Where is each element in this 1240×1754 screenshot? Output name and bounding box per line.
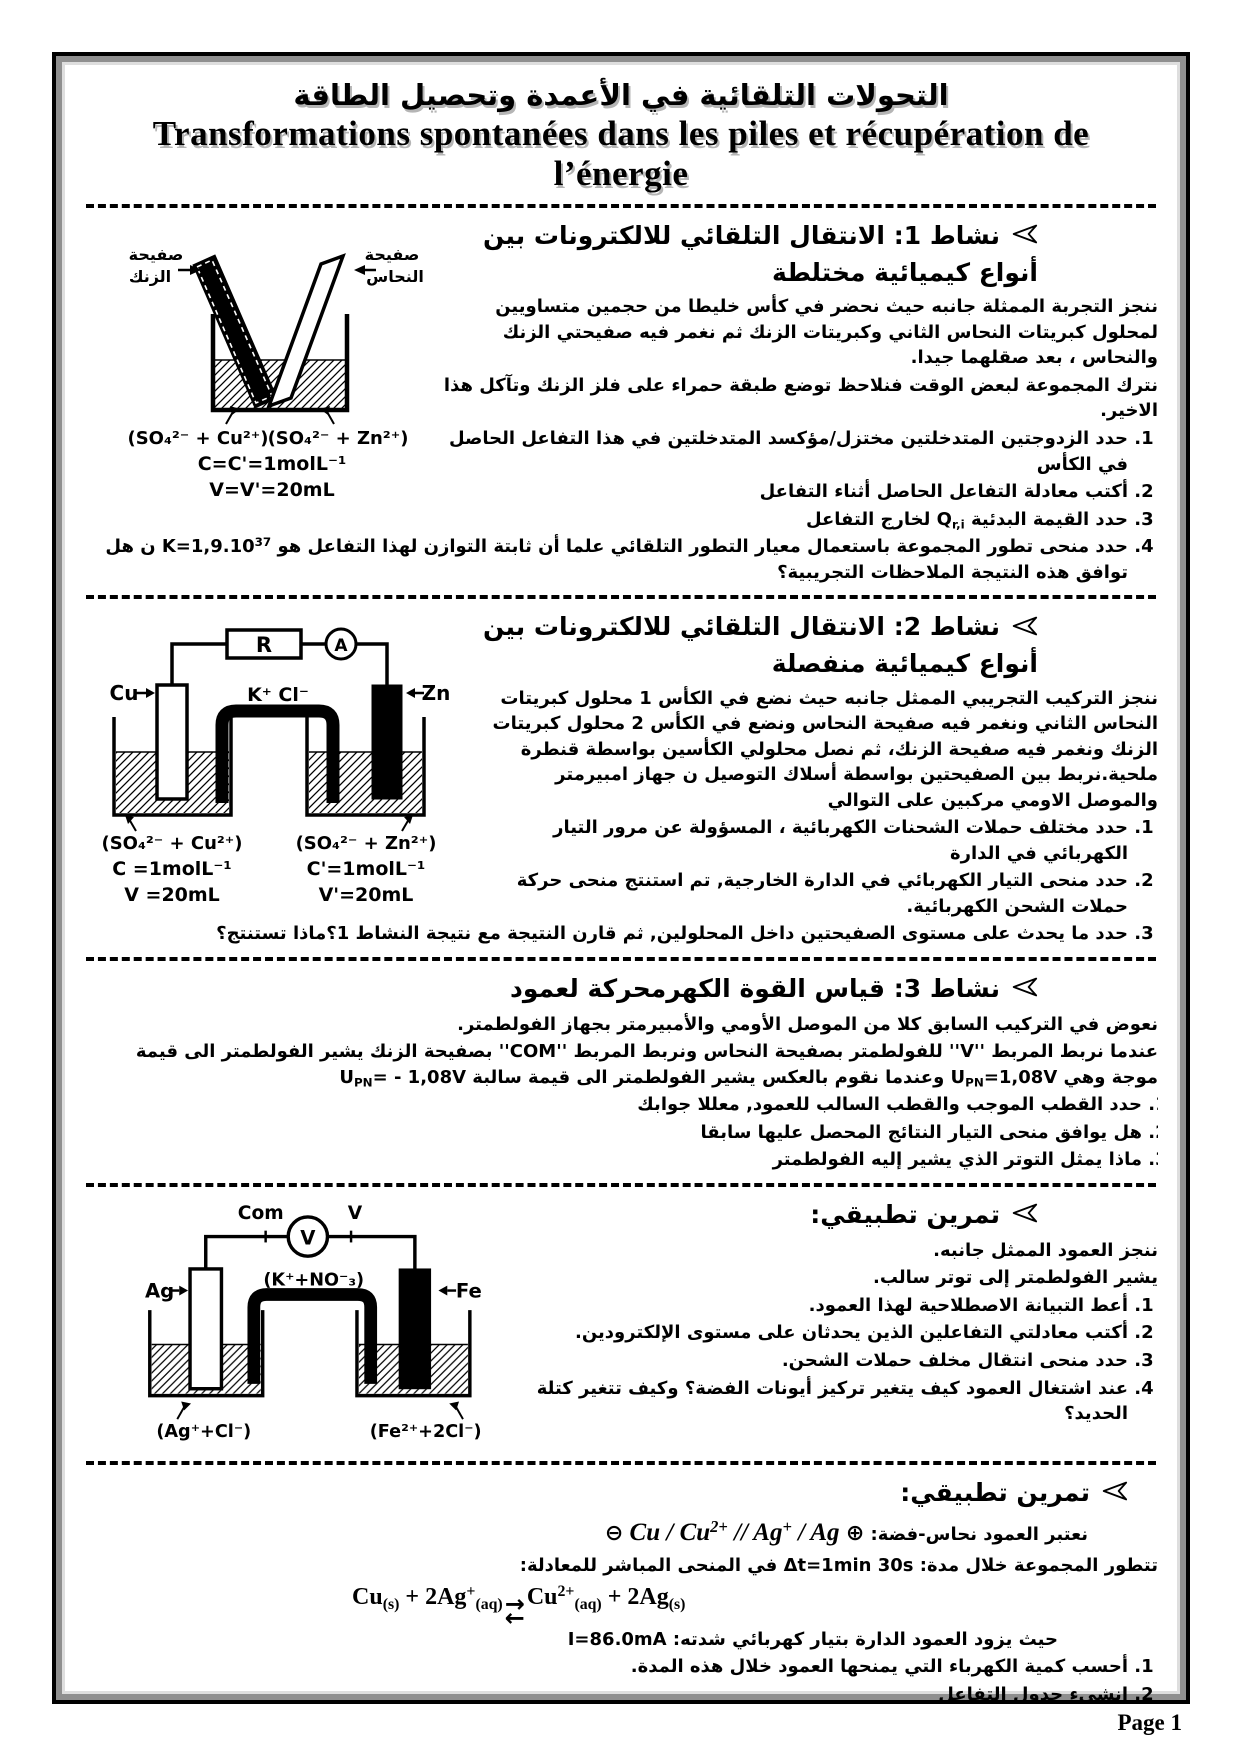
plus-pole-icon: ⊕: [846, 1521, 864, 1546]
copper-electrode-label: Cu: [110, 681, 155, 705]
com-terminal-label: Com: [238, 1203, 284, 1224]
salt-bridge-label: K⁺ Cl⁻: [247, 684, 309, 706]
svg-text:Ag: Ag: [145, 1279, 174, 1302]
zinc-plate-label: صفيحة الزنك: [129, 245, 201, 286]
cell-notation: ⊖ Cu / Cu2+ // Ag+ / Ag ⊕: [599, 1519, 864, 1546]
concentration-label: C=C'=1molL⁻¹: [198, 453, 347, 475]
mixed-beaker-figure: صفيحة الزنك صفيحة النحاس (SO₄: [84, 218, 424, 514]
exercise-2-questions: أحسب كمية الكهرباء التي يمنحها العمود خل…: [84, 1654, 1158, 1704]
question-item: أحسب كمية الكهرباء التي يمنحها العمود خل…: [84, 1654, 1128, 1680]
page-number: Page 1: [1117, 1710, 1182, 1736]
activity-2-section: R A K⁺ Cl⁻: [84, 607, 1158, 949]
iron-electrode-label: Fe: [438, 1279, 481, 1302]
solution-right-label: (SO₄²⁻ + Zn²⁺): [268, 428, 409, 449]
zinc-electrode-label: Zn: [406, 681, 450, 705]
copper-plate-label: صفيحة النحاس: [354, 245, 424, 286]
section-arrow-icon: [1010, 1198, 1038, 1234]
activity-1-title: نشاط 1: الانتقال التلقائي للالكترونات بي…: [483, 221, 1038, 287]
arrow-left-icon: [406, 688, 415, 698]
question-item: حدد ما يحدث على مستوى الصفيحتين داخل الم…: [84, 921, 1128, 947]
question-item: حدد القطب الموجب والقطب السالب للعمود, م…: [84, 1092, 1142, 1118]
solution-right-label: (SO₄²⁻ + Zn²⁺): [296, 833, 437, 854]
duration-line: تتطور المجموعة خلال مدة: Δt=1min 30s في …: [84, 1553, 1158, 1579]
svg-text:Fe: Fe: [456, 1279, 482, 1302]
zinc-electrode: [372, 685, 402, 799]
reaction-equation: Cu(s) + 2Ag+(aq)→←Cu2+(aq) + 2Ag(s): [352, 1580, 1158, 1624]
voltmeter: V: [288, 1217, 327, 1256]
dashed-separator: [86, 957, 1156, 961]
ammeter: A: [326, 629, 356, 659]
volume-label: V=V'=20mL: [209, 479, 334, 501]
cell-notation-body: Cu / Cu2+ // Ag+ / Ag: [630, 1519, 840, 1546]
cell-description-line: نعتبر العمود نحاس-فضة: ⊖ Cu / Cu2+ // Ag…: [84, 1515, 1088, 1551]
activity-3-questions: حدد القطب الموجب والقطب السالب للعمود, م…: [84, 1092, 1158, 1173]
copper-electrode: [157, 685, 187, 799]
solution-left-label: (SO₄²⁻ + Cu²⁺): [101, 833, 242, 854]
dashed-separator: [86, 1461, 1156, 1465]
title-french: Transformations spontanées dans les pile…: [84, 114, 1158, 194]
minus-pole-icon: ⊖: [605, 1521, 623, 1546]
question-item: هل يوافق منحى التيار النتائج المحصل عليه…: [84, 1120, 1142, 1146]
salt-bridge: [254, 1294, 371, 1383]
exercise-1-diagram: V Com V (K⁺+NO⁻₃) Ag: [84, 1197, 516, 1451]
solution-pointer-arrows: [125, 815, 413, 831]
worksheet-frame: التحولات التلقائية في الأعمدة وتحصيل الط…: [52, 52, 1190, 1704]
dashed-separator: [86, 204, 1156, 208]
iron-electrode: [399, 1269, 430, 1389]
equilibrium-arrows-icon: →←: [503, 1598, 527, 1624]
cell-with-ammeter-figure: R A K⁺ Cl⁻: [84, 609, 454, 909]
cell-with-voltmeter-figure: V Com V (K⁺+NO⁻₃) Ag: [84, 1197, 516, 1443]
salt-bridge-label: (K⁺+NO⁻₃): [263, 1271, 364, 1291]
resistor: R: [227, 630, 301, 658]
activity-1-diagram: صفيحة الزنك صفيحة النحاس (SO₄: [84, 218, 424, 522]
solution-right-label: (Fe²⁺+2Cl⁻): [370, 1422, 482, 1442]
activity-2-diagram: R A K⁺ Cl⁻: [84, 609, 454, 917]
dashed-separator: [86, 595, 1156, 599]
svg-text:R: R: [256, 633, 272, 657]
svg-text:الزنك: الزنك: [129, 267, 171, 286]
solution-pointer-arrows: [177, 1402, 463, 1420]
solution-left-label: (Ag⁺+Cl⁻): [156, 1422, 251, 1442]
activity-3-title: نشاط 3: قياس القوة الكهرمحركة لعمود: [510, 974, 1000, 1003]
question-item: حدد منحى تطور المجموعة باستعمال معيار ال…: [84, 534, 1128, 585]
concentration-right-label: C'=1molL⁻¹: [307, 858, 426, 880]
arrow-left-icon: [438, 1286, 447, 1296]
section-arrow-icon: [1010, 611, 1038, 647]
activity-1-section: صفيحة الزنك صفيحة النحاس (SO₄: [84, 216, 1158, 587]
right-beaker-solution: [309, 752, 422, 813]
silver-electrode-label: Ag: [145, 1279, 188, 1302]
svg-text:V: V: [300, 1226, 316, 1249]
arrow-left-icon: [354, 265, 365, 275]
section-arrow-icon: [1100, 1476, 1128, 1512]
exercise-1-section: V Com V (K⁺+NO⁻₃) Ag: [84, 1195, 1158, 1453]
exercise-1-title: تمرين تطبيقي:: [810, 1200, 1000, 1229]
volume-left-label: V =20mL: [124, 884, 220, 906]
question-item: ماذا يمثل التوتر الذي يشير إليه الفولطمت…: [84, 1147, 1142, 1173]
silver-electrode: [190, 1269, 221, 1389]
exercise-2-title: تمرين تطبيقي:: [900, 1478, 1090, 1507]
solution-left-label: (SO₄²⁻ + Cu²⁺): [127, 428, 268, 449]
exercise-2-section: تمرين تطبيقي: نعتبر العمود نحاس-فضة: ⊖ C…: [84, 1473, 1158, 1704]
equation-left: Cu(s) + 2Ag+(aq): [352, 1584, 503, 1610]
section-arrow-icon: [1010, 219, 1038, 255]
activity-3-paragraph: عندما نربط المربط ''V'' للفولطمتر بصفيحة…: [84, 1039, 1158, 1090]
volume-right-label: V'=20mL: [319, 884, 414, 906]
activity-3-section: نشاط 3: قياس القوة الكهرمحركة لعمود نعوض…: [84, 969, 1158, 1175]
activity-2-title: نشاط 2: الانتقال التلقائي للالكترونات بي…: [483, 612, 1038, 678]
dashed-separator: [86, 1183, 1156, 1187]
question-item: انشىء جدول التفاعل: [84, 1682, 1128, 1704]
v-terminal-label: V: [348, 1203, 363, 1224]
cell-intro-text: نعتبر العمود نحاس-فضة:: [871, 1524, 1088, 1545]
arrow-right-icon: [179, 1286, 188, 1296]
svg-text:صفيحة: صفيحة: [365, 245, 420, 264]
svg-text:Cu: Cu: [110, 681, 139, 705]
exercise-2-heading: تمرين تطبيقي:: [84, 1475, 1128, 1512]
activity-3-heading: نشاط 3: قياس القوة الكهرمحركة لعمود: [84, 971, 1038, 1008]
arrow-right-icon: [146, 688, 155, 698]
svg-text:A: A: [334, 636, 348, 656]
svg-text:Zn: Zn: [422, 681, 451, 705]
concentration-left-label: C =1molL⁻¹: [112, 858, 232, 880]
section-arrow-icon: [1010, 972, 1038, 1008]
equation-right: Cu2+(aq) + 2Ag(s): [527, 1584, 686, 1610]
current-line: حيث يزود العمود الدارة بتيار كهربائي شدت…: [84, 1627, 1058, 1653]
svg-text:صفيحة: صفيحة: [129, 245, 184, 264]
activity-3-paragraph: نعوض في التركيب السابق كلا من الموصل الأ…: [84, 1012, 1158, 1038]
title-arabic: التحولات التلقائية في الأعمدة وتحصيل الط…: [84, 78, 1158, 112]
